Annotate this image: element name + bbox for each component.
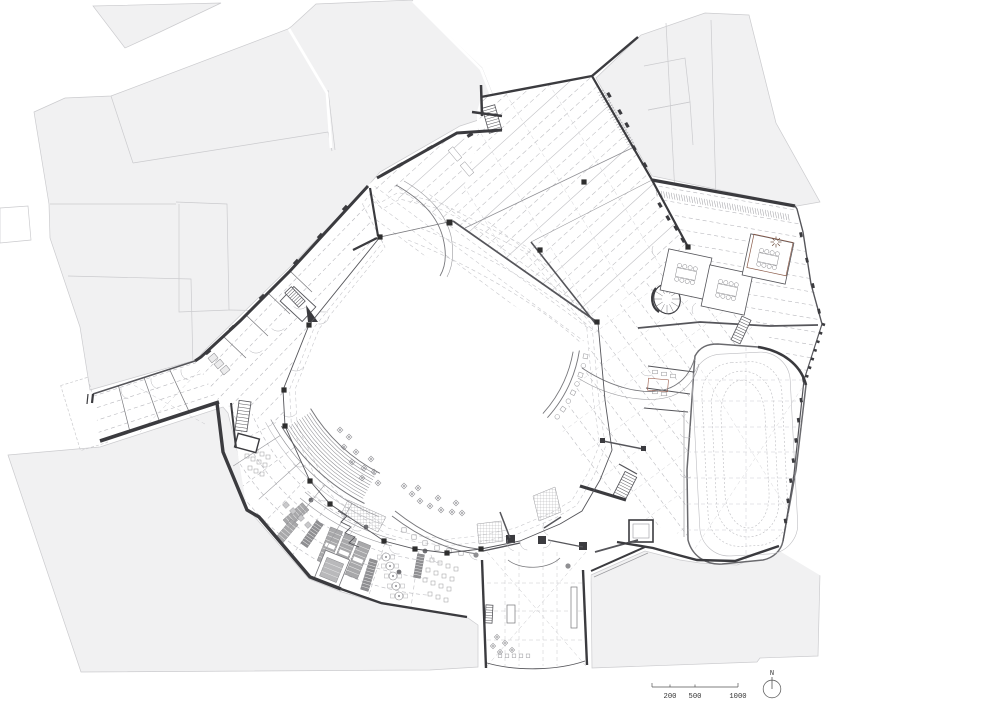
svg-text:N: N xyxy=(770,670,774,678)
svg-text:200: 200 xyxy=(664,693,677,701)
svg-text:1000: 1000 xyxy=(729,693,746,701)
svg-text:500: 500 xyxy=(689,693,702,701)
